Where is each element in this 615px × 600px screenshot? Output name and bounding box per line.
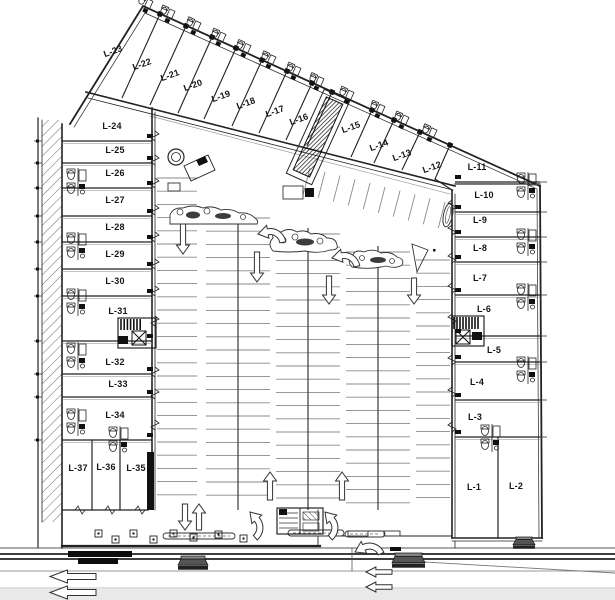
speed-table-top: [516, 537, 532, 540]
unit-label-l-31: L-31: [108, 306, 127, 316]
drain-icon: [81, 364, 85, 368]
unit-label-l-10: L-10: [474, 190, 493, 200]
toilet-tank-icon: [140, 0, 147, 1]
guard-booth-cell: [303, 512, 319, 520]
water-tank-circle-inner: [172, 153, 181, 162]
unit-label-l-28: L-28: [105, 222, 124, 232]
toilet-icon: [518, 373, 525, 382]
toilet-icon: [518, 300, 525, 309]
core-block: [472, 332, 482, 340]
toilet-icon: [68, 359, 75, 368]
shrub-clump: [370, 257, 386, 263]
toilet-icon: [482, 427, 489, 436]
dimension-dot: [36, 215, 39, 218]
elevator-x: [456, 330, 470, 344]
speed-table-slope: [392, 556, 425, 562]
unit-label-l-14: L-14: [368, 137, 390, 153]
unit-label-l-7: L-7: [473, 273, 487, 283]
toilet-icon: [518, 286, 525, 295]
plaza-planter-dot: [173, 533, 175, 535]
top-wing-divider: [232, 60, 262, 126]
sink-icon: [79, 234, 86, 245]
dimension-dot: [36, 373, 39, 376]
unit-label-l-21: L-21: [159, 67, 181, 83]
plaza-planter-dot: [133, 533, 135, 535]
toilet-icon: [482, 441, 489, 450]
door-tab: [455, 175, 461, 179]
dimension-dot: [36, 295, 39, 298]
service-block: [529, 188, 535, 193]
dimension-dot: [36, 268, 39, 271]
utility-box: [384, 531, 400, 536]
speed-table-base: [178, 566, 208, 570]
door-tab: [147, 334, 153, 338]
site-details: [68, 149, 535, 579]
unit-label-l-20: L-20: [182, 77, 204, 93]
angled-stall-line: [393, 191, 400, 217]
door-tab: [455, 430, 461, 434]
speed-table-top: [395, 553, 422, 556]
unit-label-l-6: L-6: [477, 304, 491, 314]
drain-icon: [81, 254, 85, 258]
toilet-icon: [68, 411, 75, 420]
unit-label-l-29: L-29: [105, 249, 124, 259]
flow-arrow-down-icon: [179, 504, 192, 530]
restroom-fixtures-cluster: [517, 283, 536, 311]
drain-icon: [123, 448, 127, 452]
pavement-marker: [412, 244, 428, 272]
toilet-icon: [518, 231, 525, 240]
unit-label-l-27: L-27: [105, 195, 124, 205]
top-wing-divider: [204, 48, 236, 119]
unit-label-l-5: L-5: [487, 345, 501, 355]
site-plan-canvas: L-23L-22L-21L-20L-19L-18L-17L-16L-15L-14…: [0, 0, 615, 600]
toilet-icon: [110, 429, 117, 438]
unit-label-l-13: L-13: [391, 147, 413, 163]
utility-box: [283, 186, 303, 199]
toilet-icon: [68, 249, 75, 258]
unit-label-l-2: L-2: [509, 481, 523, 491]
toilet-icon: [518, 359, 525, 368]
angled-stall-line: [333, 176, 340, 202]
service-block: [529, 372, 535, 377]
unit-label-l-12: L-12: [421, 159, 443, 175]
drain-icon: [531, 378, 535, 382]
angled-stall-line: [348, 179, 355, 205]
speed-table-base: [392, 564, 425, 568]
unit-label-l-30: L-30: [105, 276, 124, 286]
solid-wall: [305, 188, 314, 197]
flow-arrow-down-icon: [177, 224, 190, 254]
unit-label-l-26: L-26: [105, 168, 124, 178]
unit-label-l-19: L-19: [210, 88, 232, 104]
restroom-fixtures-cluster: [67, 408, 86, 436]
street-name-bar: [68, 551, 132, 557]
sink-icon: [145, 0, 153, 9]
service-block: [79, 184, 85, 189]
toilet-icon: [68, 345, 75, 354]
unit-label-l-25: L-25: [105, 145, 124, 155]
toilet-icon: [68, 291, 75, 300]
angled-stall-line: [408, 194, 415, 220]
plaza-planter-dot: [98, 533, 100, 535]
toilet-icon: [518, 189, 525, 198]
landscape-islands: [163, 202, 455, 539]
flow-arrow-down-icon: [251, 252, 264, 282]
dimension-dot: [36, 396, 39, 399]
unit-label-l-37: L-37: [68, 463, 87, 473]
door-tab: [147, 367, 153, 371]
top-wing-divider: [351, 110, 372, 157]
storefront-top-wing: [86, 92, 455, 186]
unit-label-l-1: L-1: [467, 482, 481, 492]
unit-label-l-32: L-32: [105, 357, 124, 367]
unit-label-l-4: L-4: [470, 377, 484, 387]
utility-box: [168, 183, 180, 191]
unit-label-l-15: L-15: [340, 119, 362, 135]
toilet-icon: [138, 0, 146, 5]
flow-arrow-curved-icon: [331, 247, 360, 271]
street-direction-arrow-icon: [50, 570, 96, 583]
restroom-fixtures-cluster: [517, 356, 536, 384]
flow-arrow-up-icon: [193, 504, 206, 530]
sink-icon: [493, 426, 500, 437]
dimension-dot: [36, 439, 39, 442]
equipment-block: [196, 156, 208, 166]
site-plan-drawing: L-23L-22L-21L-20L-19L-18L-17L-16L-15L-14…: [0, 0, 615, 600]
plaza-planter-dot: [218, 534, 220, 536]
drain-icon: [531, 305, 535, 309]
unit-label-l-36: L-36: [96, 462, 115, 472]
angled-stall-line: [363, 183, 370, 209]
service-block: [493, 440, 499, 445]
toilet-icon: [68, 171, 75, 180]
guard-booth-block: [279, 509, 287, 515]
service-block: [79, 304, 85, 309]
toilet-icon: [68, 305, 75, 314]
drain-icon: [81, 310, 85, 314]
speed-table-base: [513, 545, 535, 548]
unit-label-l-3: L-3: [468, 412, 482, 422]
service-block: [79, 424, 85, 429]
street-direction-arrow-icon: [366, 567, 392, 577]
sink-icon: [79, 344, 86, 355]
sink-icon: [79, 410, 86, 421]
sink-icon: [79, 170, 86, 181]
speed-table-slope: [513, 540, 535, 545]
street-name-bar: [78, 558, 118, 564]
unit-label-l-24: L-24: [102, 121, 121, 131]
street-name-bar: [390, 547, 401, 551]
dimension-dot: [36, 162, 39, 165]
door-tab: [147, 433, 153, 437]
angled-stall-line: [378, 187, 385, 213]
dimension-dot: [36, 340, 39, 343]
sink-icon: [121, 428, 128, 439]
door-tab: [147, 156, 153, 160]
unit-label-l-22: L-22: [131, 56, 153, 72]
door-tab: [147, 390, 153, 394]
roof-edge-block: [447, 142, 454, 149]
angled-stall-line: [438, 202, 445, 228]
left-sidewalk-hatch: [42, 120, 62, 522]
unit-label-l-17: L-17: [264, 103, 286, 119]
top-wing-divider: [259, 71, 287, 133]
unit-label-l-34: L-34: [105, 410, 124, 420]
restroom-fixtures-cluster: [67, 232, 86, 260]
dimension-dot: [36, 140, 39, 143]
top-wing-divider: [178, 37, 212, 113]
dimension-dot: [36, 241, 39, 244]
service-block: [529, 244, 535, 249]
elevator-x: [132, 331, 146, 345]
roof-edge-block: [369, 107, 376, 114]
plaza-planter-dot: [115, 539, 117, 541]
plaza-planter-dot: [153, 539, 155, 541]
drain-icon: [81, 430, 85, 434]
unit-label-l-18: L-18: [235, 95, 257, 111]
service-block: [79, 248, 85, 253]
toilet-icon: [110, 443, 117, 452]
service-block: [79, 358, 85, 363]
shrub-clump: [186, 212, 200, 219]
unit-label-l-9: L-9: [473, 215, 487, 225]
unit-label-l-23: L-23: [102, 43, 124, 59]
drain-icon: [531, 250, 535, 254]
unit-label-l-33: L-33: [108, 379, 127, 389]
restroom-fixtures-cluster: [67, 168, 86, 196]
water-tank-circle: [168, 149, 184, 165]
right-wing-east-wall-2: [537, 190, 539, 538]
drain-icon: [531, 194, 535, 198]
unit-label-l-11: L-11: [468, 162, 487, 172]
restroom-fixtures-cluster: [67, 288, 86, 316]
oval-island: [441, 202, 455, 227]
flow-arrow-down-icon: [408, 278, 421, 304]
restroom-fixtures-cluster: [517, 228, 536, 256]
core-block: [118, 336, 128, 344]
service-block: [529, 299, 535, 304]
toilet-icon: [68, 425, 75, 434]
unit-label-l-16: L-16: [288, 111, 310, 127]
toilet-icon: [518, 245, 525, 254]
plaza-planter-dot: [193, 537, 195, 539]
sink-icon: [529, 358, 536, 369]
speed-table-slope: [178, 559, 208, 565]
top-wing-divider: [122, 14, 160, 98]
shrub-clump: [296, 239, 314, 246]
unit-dividers: [34, 11, 547, 514]
angled-stall-line: [423, 198, 430, 224]
service-block: [121, 442, 127, 447]
flow-arrow-up-icon: [264, 472, 277, 500]
unit-label-l-8: L-8: [473, 243, 487, 253]
door-tab: [455, 255, 461, 259]
speed-table-top: [181, 556, 205, 559]
door-tab: [455, 355, 461, 359]
angled-stall-line: [318, 172, 325, 198]
unit-label-l-35: L-35: [126, 463, 145, 473]
sink-icon: [529, 285, 536, 296]
top-wing-divider: [286, 83, 312, 140]
pavement-dot: [433, 249, 436, 252]
shrub-clump: [215, 213, 231, 219]
restroom-fixtures-cluster: [67, 342, 86, 370]
toilet-icon: [68, 185, 75, 194]
top-wing-divider: [150, 26, 186, 105]
dimension-dot: [36, 187, 39, 190]
restroom-fixtures-cluster: [481, 424, 500, 452]
plaza-planter-dot: [243, 538, 245, 540]
solid-wall: [147, 452, 154, 510]
